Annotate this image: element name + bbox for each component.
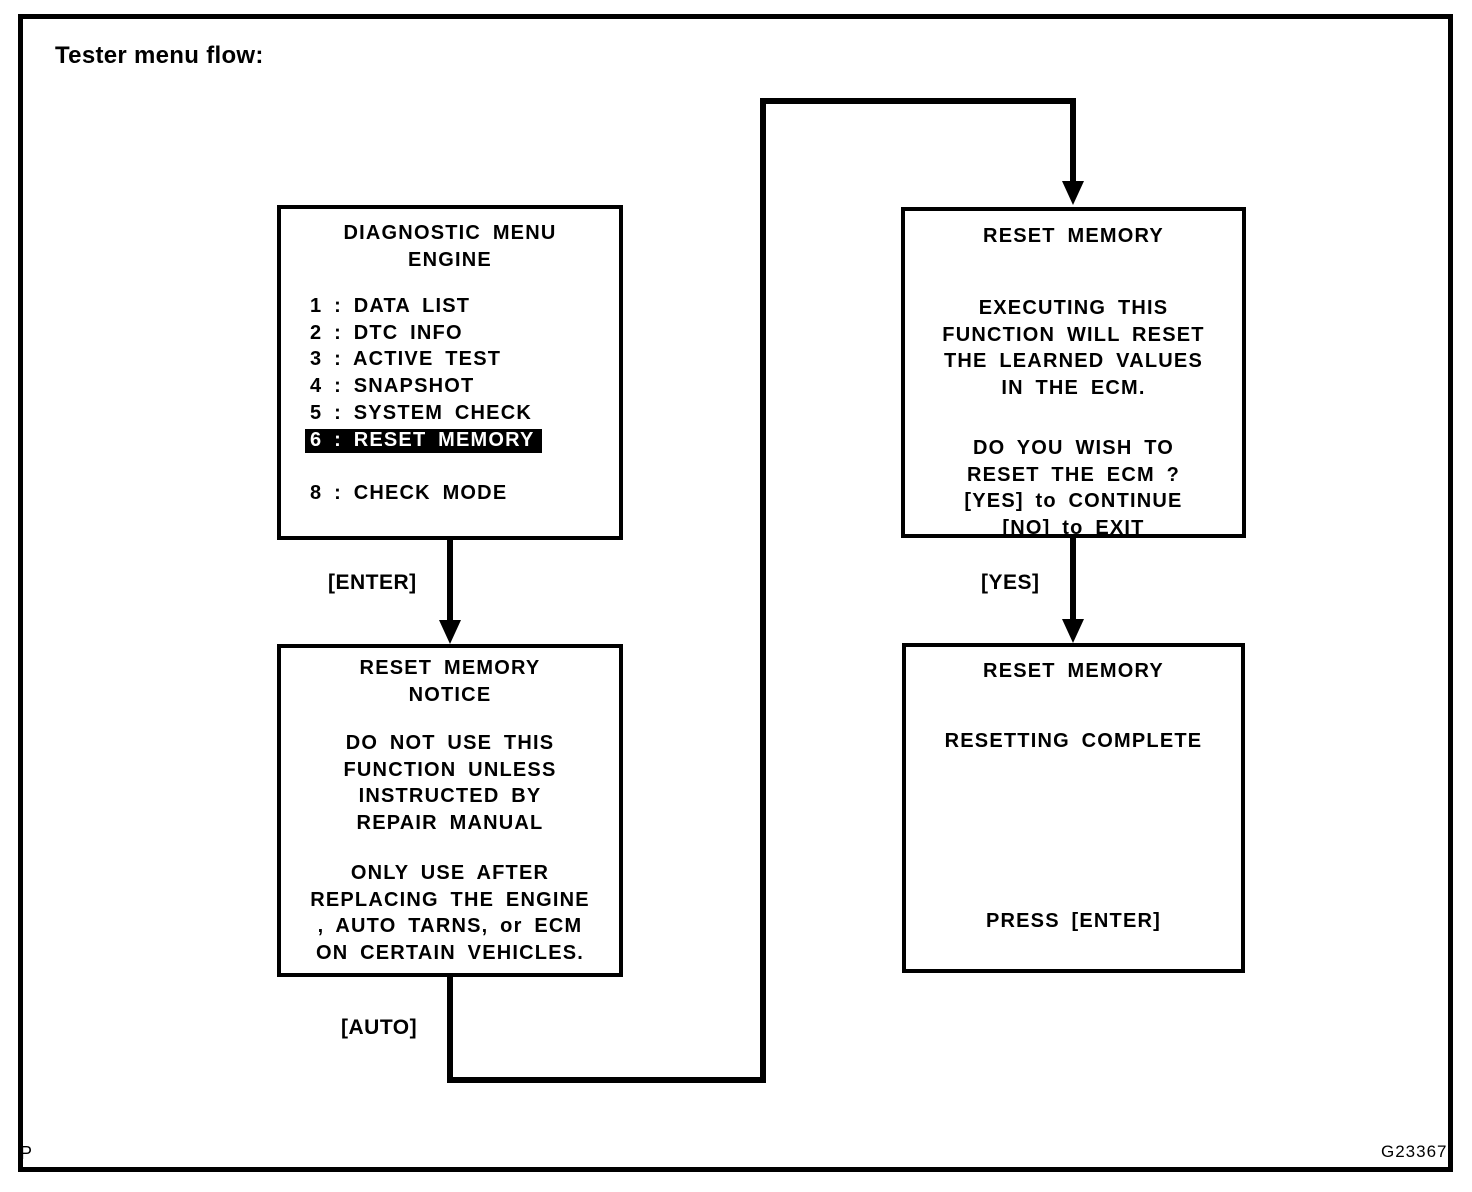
menu-item-active-test: 3 : ACTIVE TEST xyxy=(310,346,619,373)
screen-title: DIAGNOSTIC MENU ENGINE xyxy=(281,220,619,273)
menu-item-data-list: 1 : DATA LIST xyxy=(310,293,619,320)
flow-label-yes: [YES] xyxy=(981,571,1040,595)
screen-reset-memory-notice: RESET MEMORY NOTICE DO NOT USE THIS FUNC… xyxy=(277,644,623,977)
screen-diagnostic-menu: DIAGNOSTIC MENU ENGINE 1 : DATA LIST 2 :… xyxy=(277,205,623,540)
menu-item-check-mode: 8 : CHECK MODE xyxy=(310,480,619,507)
flow-line-enter xyxy=(447,540,453,622)
confirm-warning-text: EXECUTING THIS FUNCTION WILL RESET THE L… xyxy=(905,295,1242,401)
flow-label-enter: [ENTER] xyxy=(328,571,417,595)
screen-title-line1: DIAGNOSTIC MENU xyxy=(281,220,619,247)
page-corner-mark: P xyxy=(20,1143,32,1164)
screen-title: RESET MEMORY NOTICE xyxy=(281,655,619,708)
flow-line-auto-down xyxy=(447,977,453,1083)
arrowhead-down-icon xyxy=(1062,619,1084,643)
arrowhead-down-icon xyxy=(1062,181,1084,205)
manual-diagram-page: Tester menu flow: DIAGNOSTIC MENU ENGINE… xyxy=(0,0,1472,1192)
flow-line-auto-bottom xyxy=(447,1077,766,1083)
notice-warning-text: DO NOT USE THIS FUNCTION UNLESS INSTRUCT… xyxy=(281,730,619,836)
page-title: Tester menu flow: xyxy=(55,42,264,70)
screen-title-line2: ENGINE xyxy=(281,247,619,274)
flow-line-auto-top xyxy=(760,98,1076,104)
flow-line-yes xyxy=(1070,538,1076,621)
screen-reset-memory-complete: RESET MEMORY RESETTING COMPLETE PRESS [E… xyxy=(902,643,1245,973)
page-border-frame xyxy=(18,14,1453,1172)
diagnostic-menu-list: 1 : DATA LIST 2 : DTC INFO 3 : ACTIVE TE… xyxy=(281,293,619,506)
resetting-complete-status: RESETTING COMPLETE xyxy=(906,728,1241,755)
arrowhead-down-icon xyxy=(439,620,461,644)
screen-title: RESET MEMORY xyxy=(906,658,1241,685)
press-enter-prompt: PRESS [ENTER] xyxy=(906,908,1241,935)
figure-code: G23367 xyxy=(1381,1142,1448,1162)
menu-item-reset-memory-selected: 6 : RESET MEMORY xyxy=(310,427,619,454)
menu-item-system-check: 5 : SYSTEM CHECK xyxy=(310,400,619,427)
screen-title-line2: NOTICE xyxy=(281,682,619,709)
screen-title: RESET MEMORY xyxy=(905,223,1242,250)
screen-reset-memory-confirm: RESET MEMORY EXECUTING THIS FUNCTION WIL… xyxy=(901,207,1246,538)
flow-label-auto: [AUTO] xyxy=(341,1016,417,1040)
menu-item-dtc-info: 2 : DTC INFO xyxy=(310,320,619,347)
flow-line-auto-into-confirm xyxy=(1070,98,1076,181)
notice-usage-text: ONLY USE AFTER REPLACING THE ENGINE , AU… xyxy=(281,860,619,966)
confirm-prompt-text: DO YOU WISH TO RESET THE ECM ? [YES] to … xyxy=(905,435,1242,541)
menu-item-snapshot: 4 : SNAPSHOT xyxy=(310,373,619,400)
flow-line-auto-up xyxy=(760,98,766,1083)
screen-title-line1: RESET MEMORY xyxy=(281,655,619,682)
selected-menu-highlight: 6 : RESET MEMORY xyxy=(305,429,542,453)
